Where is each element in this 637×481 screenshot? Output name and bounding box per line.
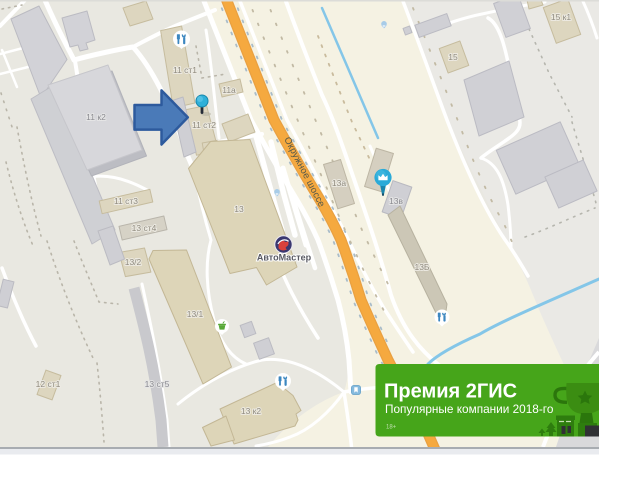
svg-text:18+: 18+ (386, 425, 397, 431)
svg-text:Премия 2ГИС: Премия 2ГИС (384, 381, 517, 403)
svg-text:15 к1: 15 к1 (551, 12, 572, 22)
svg-text:Популярные компании 2018-го: Популярные компании 2018-го (385, 402, 554, 416)
svg-text:13/2: 13/2 (125, 257, 142, 267)
svg-text:13в: 13в (389, 196, 403, 206)
svg-text:11 к2: 11 к2 (86, 112, 106, 122)
svg-text:11 ст2: 11 ст2 (192, 120, 216, 130)
svg-text:12 ст1: 12 ст1 (36, 379, 61, 389)
svg-text:13а: 13а (332, 178, 346, 188)
svg-text:АвтоМастер: АвтоМастер (257, 253, 312, 263)
svg-text:15: 15 (448, 52, 458, 62)
svg-text:11а: 11а (222, 85, 236, 95)
svg-text:13 к2: 13 к2 (241, 406, 262, 416)
svg-text:13 ст5: 13 ст5 (145, 379, 170, 389)
svg-text:13: 13 (234, 204, 244, 214)
svg-text:11 ст3: 11 ст3 (114, 196, 138, 206)
svg-text:13 ст4: 13 ст4 (132, 223, 157, 233)
svg-text:P: P (382, 24, 385, 29)
svg-text:13Б: 13Б (414, 262, 429, 272)
svg-text:11 ст1: 11 ст1 (173, 65, 197, 75)
svg-text:13/1: 13/1 (187, 309, 204, 319)
svg-text:P: P (275, 192, 278, 197)
